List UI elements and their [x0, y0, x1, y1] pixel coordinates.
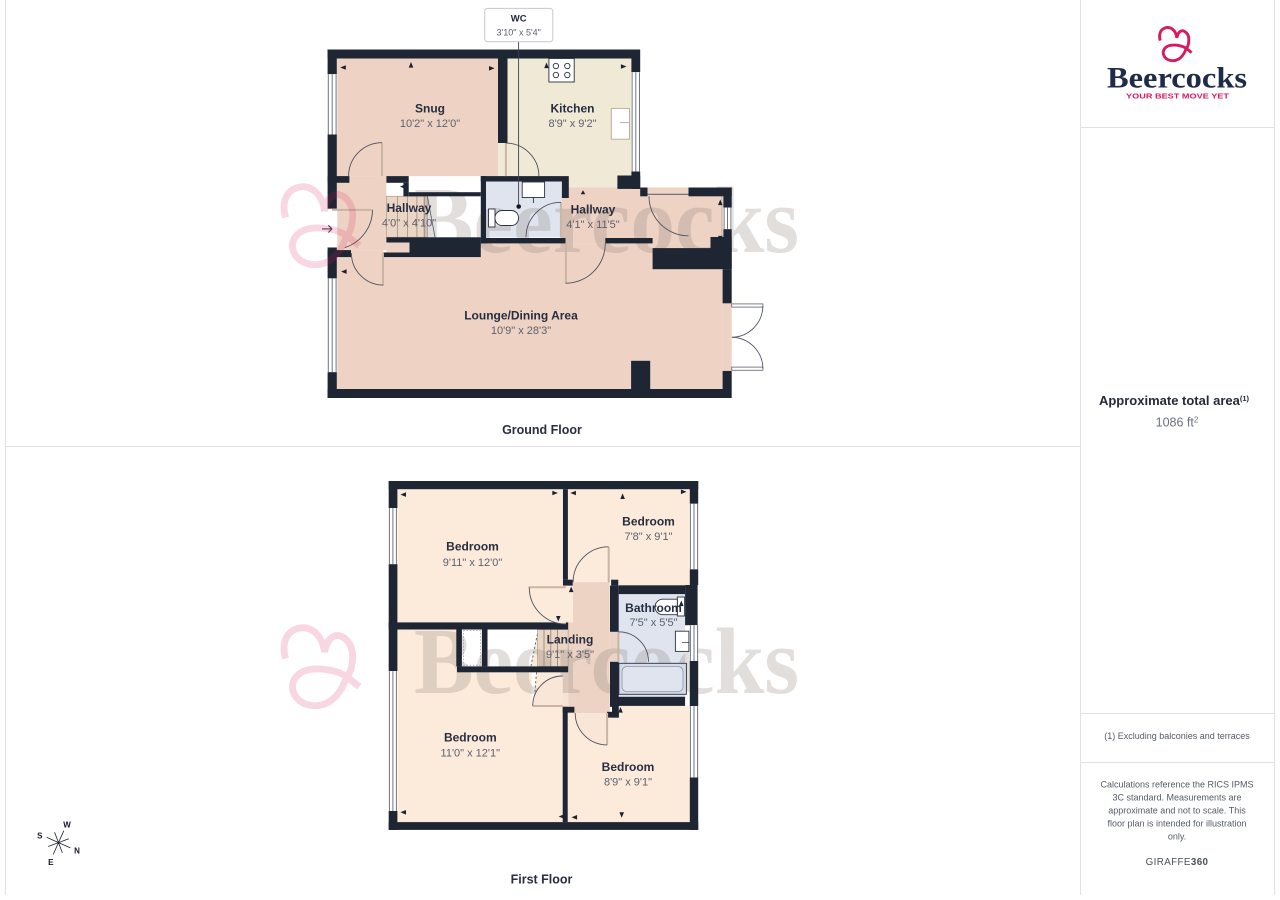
svg-text:3'10" x 5'4": 3'10" x 5'4"	[497, 28, 541, 38]
svg-text:only.: only.	[1168, 832, 1186, 842]
svg-text:(1) Excluding balconies and te: (1) Excluding balconies and terraces	[1104, 731, 1250, 741]
svg-text:8'9" x 9'1": 8'9" x 9'1"	[604, 777, 652, 789]
svg-text:Ground Floor: Ground Floor	[502, 423, 582, 437]
svg-text:Bathroom: Bathroom	[625, 601, 682, 615]
svg-text:10'2" x 12'0": 10'2" x 12'0"	[400, 118, 460, 130]
svg-text:3C standard. Measurements are: 3C standard. Measurements are	[1112, 793, 1241, 803]
svg-text:E: E	[48, 858, 54, 867]
svg-text:GIRAFFE360: GIRAFFE360	[1146, 857, 1209, 868]
svg-text:4'0" x 4'10": 4'0" x 4'10"	[382, 218, 436, 230]
svg-text:9'1" x 3'5": 9'1" x 3'5"	[546, 649, 594, 661]
svg-text:Bedroom: Bedroom	[446, 540, 499, 554]
svg-text:floor plan is intended for ill: floor plan is intended for illustration	[1107, 819, 1246, 829]
svg-text:First Floor: First Floor	[511, 873, 573, 887]
svg-text:Hallway: Hallway	[571, 203, 616, 217]
svg-text:Snug: Snug	[415, 102, 445, 116]
svg-text:Bedroom: Bedroom	[444, 731, 497, 745]
svg-text:Bedroom: Bedroom	[622, 515, 675, 529]
svg-text:8'9" x 9'2": 8'9" x 9'2"	[548, 118, 596, 130]
svg-text:4'1" x 11'5": 4'1" x 11'5"	[566, 219, 619, 231]
svg-text:Bedroom: Bedroom	[602, 760, 655, 774]
svg-text:approximate and not to scale.: approximate and not to scale. This	[1108, 806, 1246, 816]
svg-text:YOUR BEST MOVE YET: YOUR BEST MOVE YET	[1126, 92, 1229, 101]
svg-text:7'5" x 5'5": 7'5" x 5'5"	[629, 617, 677, 629]
svg-text:Lounge/Dining Area: Lounge/Dining Area	[464, 309, 578, 323]
svg-text:10'9" x 28'3": 10'9" x 28'3"	[491, 325, 551, 337]
svg-text:WC: WC	[511, 14, 527, 25]
svg-text:1086 ft2: 1086 ft2	[1156, 416, 1199, 430]
svg-text:Kitchen: Kitchen	[550, 102, 594, 116]
svg-text:Calculations reference the RIC: Calculations reference the RICS IPMS	[1100, 780, 1253, 790]
svg-text:S: S	[37, 832, 43, 841]
svg-text:Hallway: Hallway	[387, 201, 432, 215]
svg-text:Approximate total area(1): Approximate total area(1)	[1099, 393, 1250, 408]
svg-text:N: N	[74, 847, 80, 856]
svg-text:7'8" x 9'1": 7'8" x 9'1"	[624, 531, 672, 543]
svg-text:Landing: Landing	[547, 632, 594, 646]
svg-text:W: W	[63, 821, 71, 830]
svg-text:Beercocks: Beercocks	[1107, 62, 1247, 95]
svg-text:9'11" x 12'0": 9'11" x 12'0"	[443, 557, 503, 569]
svg-text:11'0" x 12'1": 11'0" x 12'1"	[441, 748, 501, 760]
